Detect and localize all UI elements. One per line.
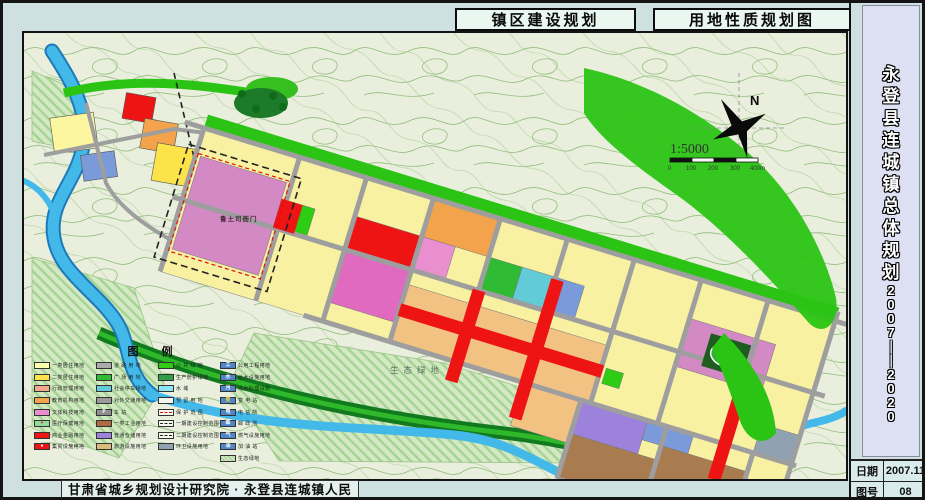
sidebar-period-char: 2: [887, 396, 894, 410]
legend-swatch: [34, 397, 50, 404]
legend-label: 道 路 用 地: [114, 362, 141, 369]
legend-label: 一类工业用地: [114, 420, 146, 427]
sidebar-title-char: 县: [883, 108, 900, 130]
legend-label: 车 站: [114, 409, 127, 416]
legend-swatch: [158, 362, 174, 369]
legend-swatch: [158, 385, 174, 392]
legend-item: 文体科技用地: [34, 406, 84, 418]
legend-label: 二期建设控制范围: [176, 432, 219, 439]
title-right-text: 用地性质规划图: [689, 12, 815, 29]
legend-label: 生产防护绿地: [176, 374, 208, 381]
date-row: 日期 2007.11: [851, 461, 925, 482]
legend-item: 一类工业用地: [96, 418, 146, 430]
legend-column: 一类居住用地二类居住用地行政管理用地教育机构用地文体科技用地+医疗保健用地商业金…: [34, 360, 84, 453]
legend-swatch: 水: [220, 374, 236, 381]
legend-swatch: [158, 432, 174, 439]
legend-swatch: [96, 362, 112, 369]
legend-item: 对外交通用地: [96, 395, 146, 407]
legend-item: 一期建设控制范围: [158, 418, 219, 430]
legend-swatch: [34, 409, 50, 416]
title-box-landuse: 用地性质规划图: [653, 8, 851, 31]
legend: 图 例 一类居住用地二类居住用地行政管理用地教育机构用地文体科技用地+医疗保健用…: [34, 343, 276, 465]
legend-symbol: 水: [225, 375, 230, 380]
legend-swatch: [34, 432, 50, 439]
legend-label: 二类居住用地: [52, 374, 84, 381]
legend-item: 广 场 用 地: [96, 372, 146, 384]
legend-label: 广 场 用 地: [114, 374, 141, 381]
legend-label: 商业金融用地: [52, 432, 84, 439]
legend-label: 给水设施用地: [238, 374, 270, 381]
legend-label: 普通仓储用地: [114, 432, 146, 439]
sidebar-title-char: 规: [883, 240, 900, 262]
legend-item: 一类居住用地: [34, 360, 84, 372]
sidebar-title-char: 城: [883, 152, 900, 174]
date-label: 日期: [851, 461, 884, 481]
legend-symbol: 邮: [225, 421, 230, 426]
sidebar-title-char: 总: [883, 196, 900, 218]
sidebar-period-char: —: [884, 341, 898, 354]
legend-label: 行政管理用地: [52, 385, 84, 392]
north-label: N: [750, 93, 759, 108]
legend-symbol: P: [102, 410, 105, 415]
legend-label: 污水处理设施: [238, 385, 270, 392]
legend-swatch: 气: [220, 432, 236, 439]
legend-item: 教育机构用地: [34, 395, 84, 407]
legend-swatch: +: [34, 420, 50, 427]
legend-label: 公 共 绿 地: [176, 362, 203, 369]
legend-swatch: [34, 385, 50, 392]
legend-symbol: 工: [225, 363, 230, 368]
legend-label: 对外交通用地: [114, 397, 146, 404]
sidebar-title-char: 登: [883, 86, 900, 108]
sidebar-period-char: 0: [887, 298, 894, 312]
sidebar-title-char: 连: [883, 130, 900, 152]
sidebar-title-char: 体: [883, 218, 900, 240]
legend-item: 保 护 范 围: [158, 406, 219, 418]
legend-label: 生态绿地: [238, 455, 260, 462]
scale-tick: 100: [686, 166, 697, 172]
legend-label: 加 油 站: [238, 443, 258, 450]
legend-swatch: [96, 432, 112, 439]
plan-sheet: 鲁土司衙门 生态绿地 N 1:5000 0: [0, 0, 925, 500]
legend-item: 二期建设控制范围: [158, 430, 219, 442]
legend-item: 预 留 用 地: [158, 395, 219, 407]
map-panel: 鲁土司衙门 生态绿地 N 1:5000 0: [22, 31, 848, 481]
legend-swatch: [96, 374, 112, 381]
legend-item: 普通仓储用地: [96, 430, 146, 442]
legend-label: 变 电 站: [238, 397, 258, 404]
legend-swatch: [96, 420, 112, 427]
legend-swatch: [158, 443, 174, 450]
legend-label: 医疗保健用地: [52, 420, 84, 427]
legend-label: 电 信 所: [238, 409, 258, 416]
sidebar-period-char: 0: [887, 382, 894, 396]
legend-item: 二类居住用地: [34, 372, 84, 384]
legend-item: 变变 电 站: [220, 395, 270, 407]
legend-swatch: 电: [220, 409, 236, 416]
landmark-label: 鲁土司衙门: [219, 214, 258, 223]
legend-item: 公 共 绿 地: [158, 360, 219, 372]
legend-label: 邮 政 所: [238, 420, 258, 427]
sidebar: 永登县连城镇总体规划2007——2020 日期 2007.11 图号 08: [849, 3, 925, 500]
legend-item: 道 路 用 地: [96, 360, 146, 372]
legend-swatch: [158, 420, 174, 427]
legend-symbol: +: [41, 421, 44, 426]
sidebar-title: 永登县连城镇总体规划2007——2020: [862, 5, 920, 457]
credit-bar: 甘肃省城乡规划设计研究院 · 永登县连城镇人民政府: [61, 480, 359, 500]
legend-item: P车 站: [96, 406, 146, 418]
credit-text: 甘肃省城乡规划设计研究院 · 永登县连城镇人民政府: [68, 483, 352, 500]
legend-item: 商业金融用地: [34, 430, 84, 442]
legend-swatch: 工: [220, 362, 236, 369]
legend-item: ●集贸设施用地: [34, 441, 84, 453]
legend-label: 文体科技用地: [52, 409, 84, 416]
legend-swatch: [34, 362, 50, 369]
legend-label: 一类居住用地: [52, 362, 84, 369]
legend-item: 生态绿地: [220, 453, 270, 465]
legend-swatch: 污: [220, 385, 236, 392]
legend-symbol: 油: [225, 444, 230, 449]
legend-title: 图 例: [34, 343, 276, 359]
title-box-construction: 镇区建设规划: [455, 8, 636, 31]
legend-item: 气燃气设施用地: [220, 430, 270, 442]
legend-label: 社会停车场地: [114, 385, 146, 392]
eco-label: 生态绿地: [390, 365, 444, 375]
legend-swatch: [158, 397, 174, 404]
legend-swatch: [96, 443, 112, 450]
legend-label: 保 护 范 围: [176, 409, 203, 416]
legend-item: +医疗保健用地: [34, 418, 84, 430]
legend-swatch: 油: [220, 443, 236, 450]
legend-label: 预 留 用 地: [176, 397, 203, 404]
sheet-row: 图号 08: [851, 482, 925, 500]
legend-column: 工公用工程用地水给水设施用地污污水处理设施变变 电 站电电 信 所邮邮 政 所气…: [220, 360, 270, 464]
sidebar-title-char: 镇: [883, 174, 900, 196]
legend-item: 邮邮 政 所: [220, 418, 270, 430]
legend-label: 燃气设施用地: [238, 432, 270, 439]
legend-item: 水 域: [158, 383, 219, 395]
legend-item: 社会停车场地: [96, 383, 146, 395]
legend-column: 道 路 用 地广 场 用 地社会停车场地对外交通用地P车 站一类工业用地普通仓储…: [96, 360, 146, 453]
legend-label: 环卫设施用地: [176, 443, 208, 450]
legend-swatch: [96, 397, 112, 404]
legend-symbol: 变: [225, 398, 230, 403]
legend-label: 公用工程用地: [238, 362, 270, 369]
sidebar-period-char: 0: [887, 312, 894, 326]
legend-swatch: ●: [34, 443, 50, 450]
sidebar-period-char: 2: [887, 284, 894, 298]
legend-item: 旅游设施用地: [96, 441, 146, 453]
scale-tick: 300: [730, 166, 741, 172]
legend-label: 集贸设施用地: [52, 443, 84, 450]
legend-swatch: [158, 409, 174, 416]
sheet-label: 图号: [851, 482, 884, 500]
legend-swatch: [34, 374, 50, 381]
legend-item: 行政管理用地: [34, 383, 84, 395]
title-left-text: 镇区建设规划: [491, 12, 599, 29]
legend-swatch: P: [96, 409, 112, 416]
legend-item: 电电 信 所: [220, 406, 270, 418]
sidebar-title-char: 划: [883, 262, 900, 284]
legend-item: 水给水设施用地: [220, 372, 270, 384]
sidebar-title-char: 永: [883, 64, 900, 86]
info-table: 日期 2007.11 图号 08: [851, 459, 925, 500]
legend-item: 环卫设施用地: [158, 441, 219, 453]
legend-label: 教育机构用地: [52, 397, 84, 404]
sidebar-period-char: 2: [887, 368, 894, 382]
scale-text: 1:5000: [670, 142, 709, 157]
legend-symbol: 电: [225, 410, 230, 415]
sheet-value: 08: [884, 482, 925, 500]
legend-symbol: 气: [225, 433, 230, 438]
legend-item: 油加 油 站: [220, 441, 270, 453]
legend-label: 旅游设施用地: [114, 443, 146, 450]
sidebar-period-char: 0: [887, 410, 894, 424]
legend-column: 公 共 绿 地生产防护绿地水 域预 留 用 地保 护 范 围一期建设控制范围二期…: [158, 360, 219, 453]
legend-swatch: 变: [220, 397, 236, 404]
legend-label: 水 域: [176, 385, 189, 392]
date-value: 2007.11: [884, 461, 925, 481]
legend-swatch: [158, 374, 174, 381]
legend-swatch: [96, 385, 112, 392]
legend-label: 一期建设控制范围: [176, 420, 219, 427]
legend-symbol: ●: [40, 444, 43, 449]
sidebar-period-char: —: [884, 355, 898, 368]
legend-symbol: 污: [225, 386, 230, 391]
legend-swatch: 邮: [220, 420, 236, 427]
legend-item: 工公用工程用地: [220, 360, 270, 372]
scale-tick: 200: [708, 166, 719, 172]
legend-item: 生产防护绿地: [158, 372, 219, 384]
sidebar-period-char: 7: [887, 326, 894, 340]
scale-tick: 400m: [750, 166, 765, 172]
legend-item: 污污水处理设施: [220, 383, 270, 395]
legend-swatch: [220, 455, 236, 462]
